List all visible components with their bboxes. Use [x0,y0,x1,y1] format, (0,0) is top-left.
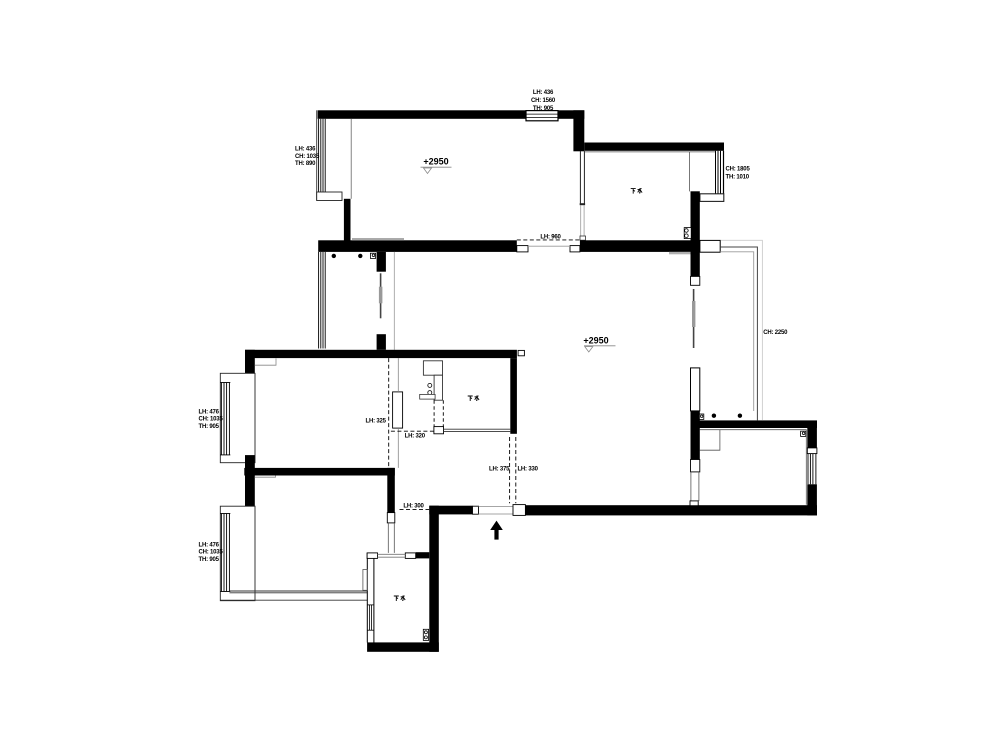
svg-text:LH: 476: LH: 476 [199,542,220,548]
svg-text:CH: 1035: CH: 1035 [295,154,320,160]
svg-text:LH: 476: LH: 476 [199,409,220,415]
svg-text:LH: 436: LH: 436 [533,90,554,96]
svg-text:LH: 375: LH: 375 [489,466,510,472]
svg-text:LH: 320: LH: 320 [405,433,426,439]
svg-text:TH: 905: TH: 905 [199,557,220,563]
svg-text:+2950: +2950 [423,157,448,167]
svg-text:+2950: +2950 [583,335,608,345]
svg-text:LH: 325: LH: 325 [366,419,387,425]
svg-text:TH: 890: TH: 890 [295,161,316,167]
svg-text:CH: 2250: CH: 2250 [763,330,788,336]
svg-text:LH: 436: LH: 436 [295,147,316,153]
svg-text:LH: 960: LH: 960 [540,235,561,241]
svg-text:CH: 1560: CH: 1560 [531,98,556,104]
svg-text:CH: 1805: CH: 1805 [726,167,751,173]
svg-text:TH: 905: TH: 905 [533,106,554,112]
svg-text:CH: 1035: CH: 1035 [199,550,224,556]
svg-text:LH: 330: LH: 330 [517,466,538,472]
svg-text:TH: 1010: TH: 1010 [726,175,750,181]
svg-text:CH: 1035: CH: 1035 [199,417,224,423]
svg-text:TH: 905: TH: 905 [199,424,220,430]
svg-text:LH: 300: LH: 300 [403,503,424,509]
